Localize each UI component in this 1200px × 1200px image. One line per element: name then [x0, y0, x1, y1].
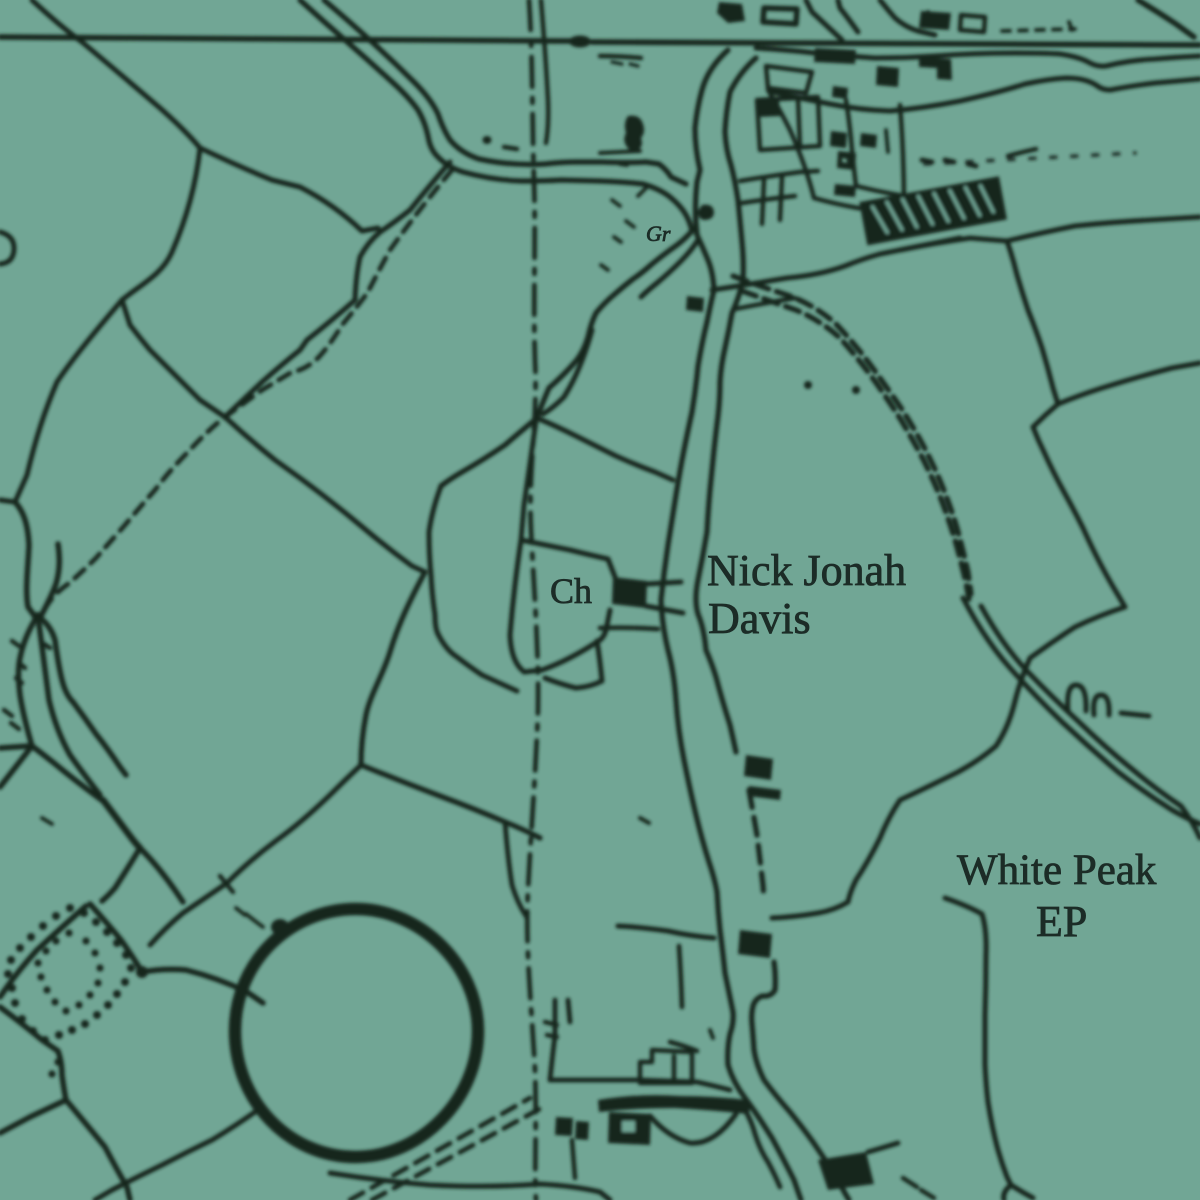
svg-text:EP: EP	[1036, 897, 1087, 946]
svg-text:Ch: Ch	[550, 571, 592, 611]
svg-text:Nick Jonah: Nick Jonah	[707, 546, 906, 595]
svg-text:Davis: Davis	[708, 594, 811, 643]
svg-text:Gr: Gr	[646, 221, 671, 246]
svg-text:White Peak: White Peak	[957, 847, 1157, 894]
